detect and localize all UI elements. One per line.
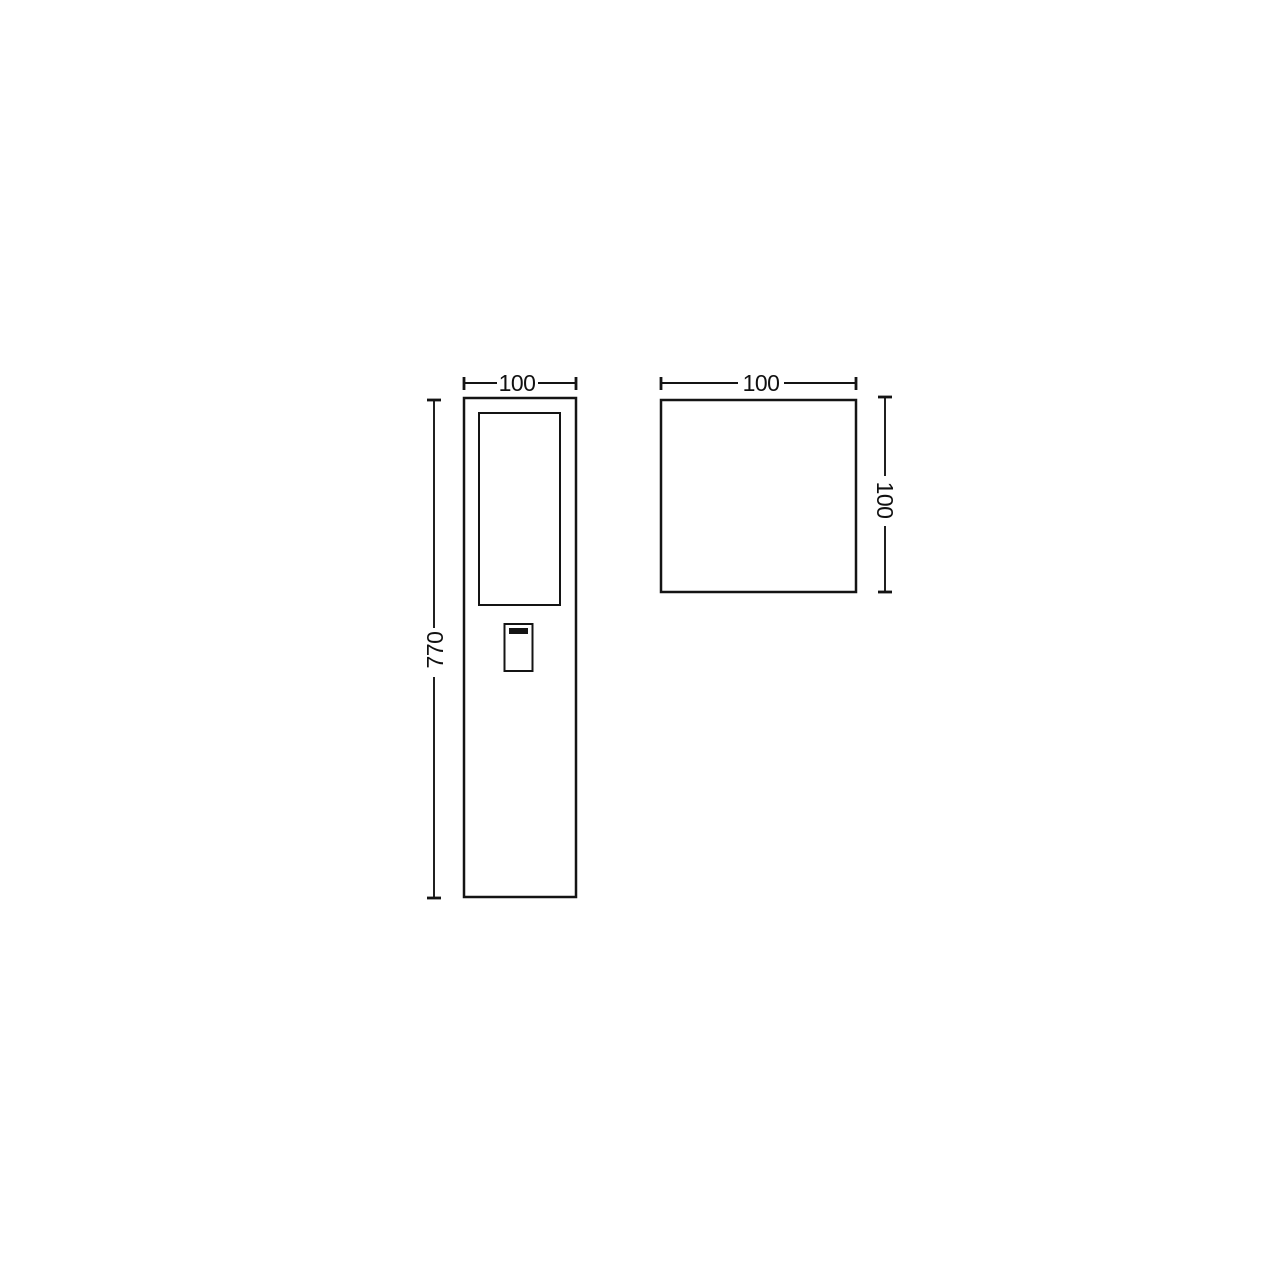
front-view — [464, 398, 576, 897]
dimension-drawing: 100 770 100 100 — [0, 0, 1280, 1280]
front-view-detail-slot — [509, 628, 528, 634]
front-height-dim-label: 770 — [422, 632, 448, 669]
top-view — [661, 400, 856, 592]
top-depth-dimension: 100 — [872, 397, 898, 592]
top-width-dimension: 100 — [661, 370, 856, 396]
drawing-svg: 100 770 100 100 — [0, 0, 1280, 1280]
top-width-dim-label: 100 — [743, 370, 780, 396]
front-height-dimension: 770 — [422, 400, 448, 898]
front-width-dim-label: 100 — [499, 370, 536, 396]
top-view-body-outline — [661, 400, 856, 592]
top-depth-dim-label: 100 — [872, 482, 898, 519]
front-width-dimension: 100 — [464, 370, 576, 396]
front-view-light-panel — [479, 413, 560, 605]
